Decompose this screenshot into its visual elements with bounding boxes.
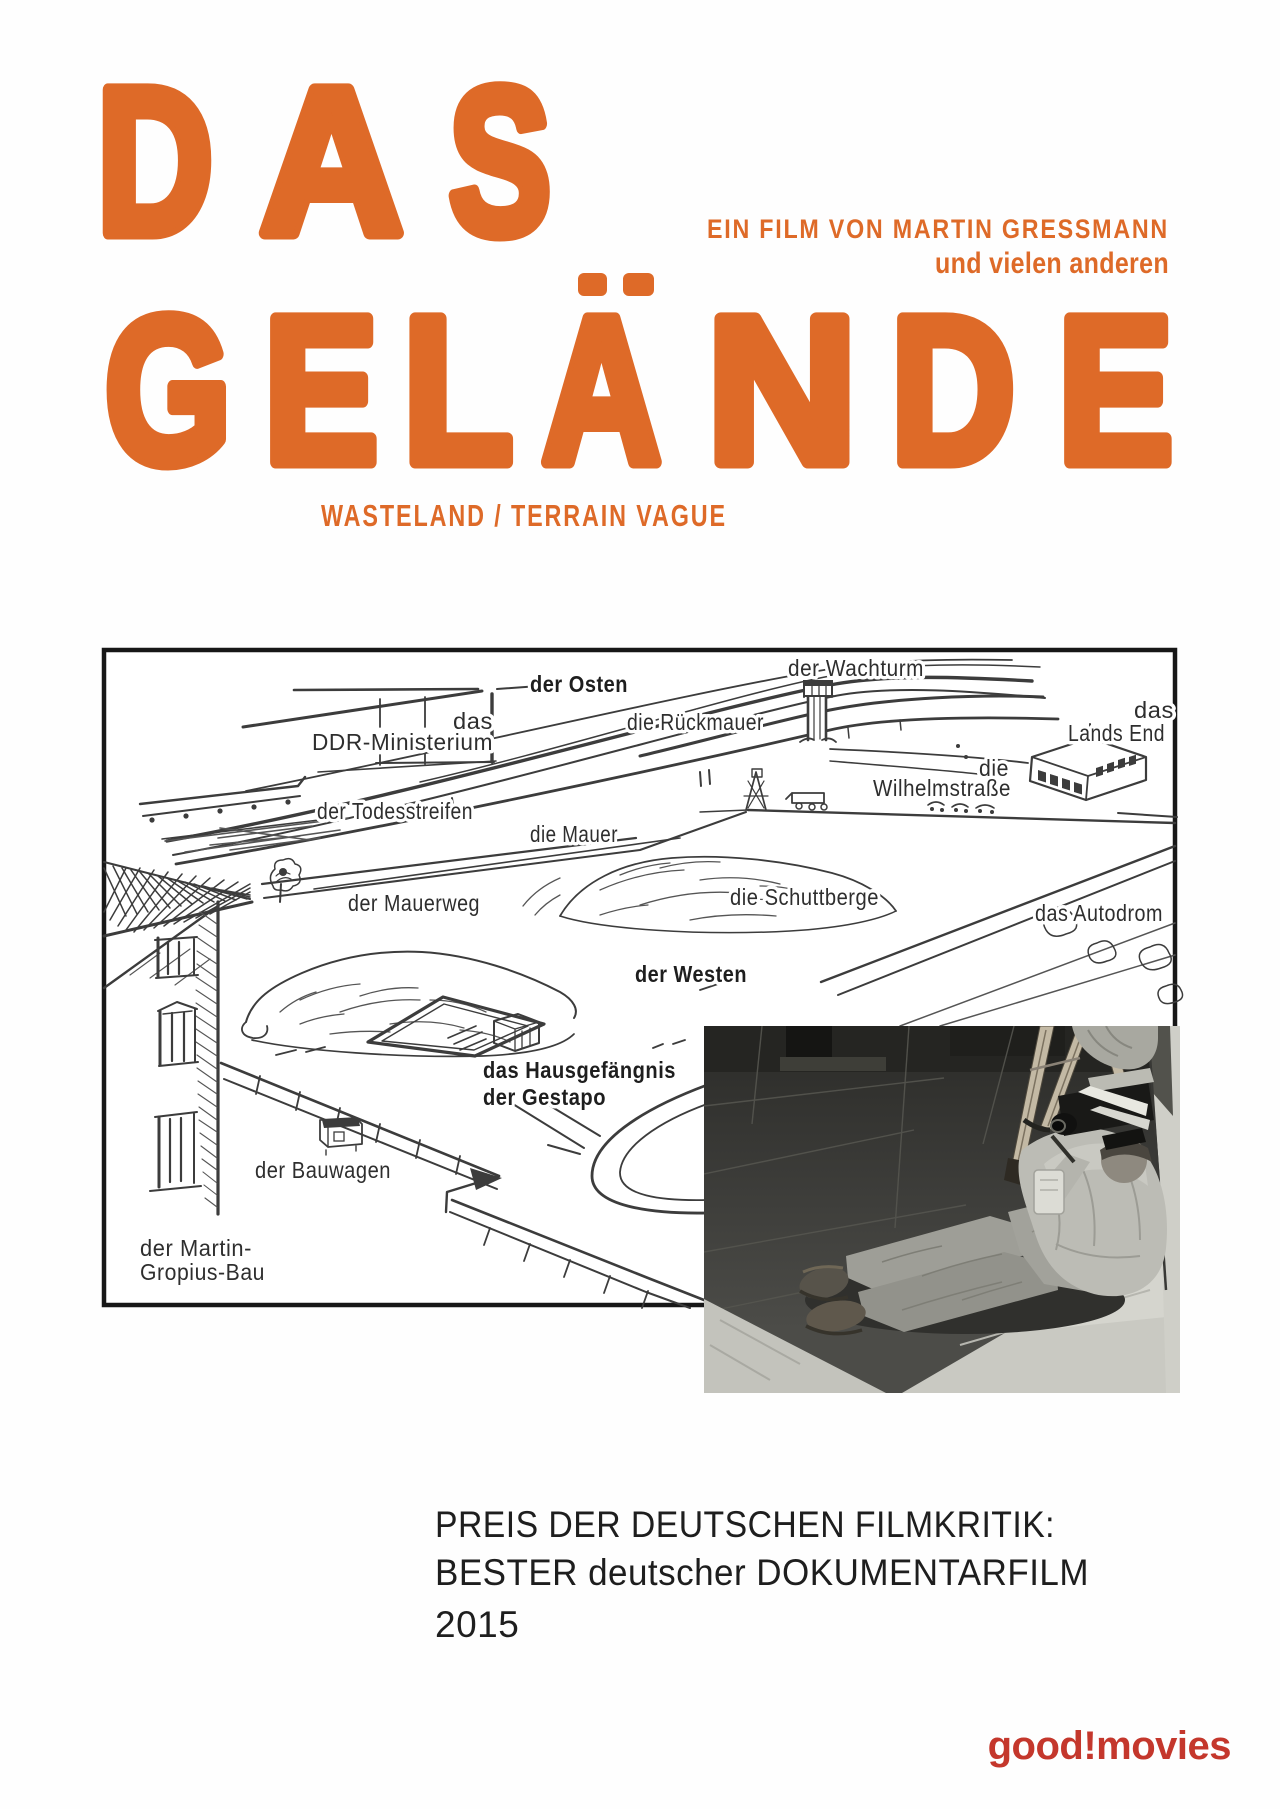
svg-text:D: D xyxy=(97,46,213,278)
svg-text:Gropius-Bau: Gropius-Bau xyxy=(140,1259,265,1285)
svg-text:der Bauwagen: der Bauwagen xyxy=(255,1157,391,1183)
svg-text:der Todesstreifen: der Todesstreifen xyxy=(317,798,473,824)
svg-text:D: D xyxy=(891,275,1015,507)
svg-text:Wilhelmstraße: Wilhelmstraße xyxy=(873,775,1011,801)
svg-text:Lands End: Lands End xyxy=(1068,720,1165,746)
svg-text:2015: 2015 xyxy=(435,1604,519,1645)
svg-text:BESTER deutscher DOKUMENTARFIL: BESTER deutscher DOKUMENTARFILM xyxy=(435,1552,1089,1593)
svg-text:G: G xyxy=(105,275,231,507)
svg-text:S: S xyxy=(449,46,551,278)
svg-text:A: A xyxy=(542,275,661,507)
svg-text:der Wachturm: der Wachturm xyxy=(788,655,924,681)
svg-text:die Schuttberge: die Schuttberge xyxy=(730,884,879,910)
svg-text:N: N xyxy=(707,275,857,507)
svg-text:DDR-Ministerium: DDR-Ministerium xyxy=(312,729,493,755)
svg-text:A: A xyxy=(260,46,403,278)
svg-text:der Martin-: der Martin- xyxy=(140,1235,252,1261)
svg-text:das Hausgefängnis: das Hausgefängnis xyxy=(483,1057,676,1083)
svg-text:E: E xyxy=(1058,275,1173,507)
svg-text:der Gestapo: der Gestapo xyxy=(483,1084,606,1110)
svg-text:WASTELAND / TERRAIN VAGUE: WASTELAND / TERRAIN VAGUE xyxy=(321,498,727,533)
svg-text:das Autodrom: das Autodrom xyxy=(1035,900,1163,926)
svg-text:die Mauer: die Mauer xyxy=(530,821,618,847)
svg-text:die Rückmauer: die Rückmauer xyxy=(627,709,764,735)
svg-text:E: E xyxy=(264,275,378,507)
svg-text:und vielen anderen: und vielen anderen xyxy=(935,247,1169,280)
svg-text:PREIS DER DEUTSCHEN FILMKRITIK: PREIS DER DEUTSCHEN FILMKRITIK: xyxy=(435,1504,1055,1545)
svg-text:good!movies: good!movies xyxy=(988,1724,1231,1768)
svg-text:L: L xyxy=(403,275,513,507)
svg-text:der Mauerweg: der Mauerweg xyxy=(348,890,480,916)
svg-text:der Westen: der Westen xyxy=(635,961,747,987)
svg-text:der Osten: der Osten xyxy=(530,671,628,697)
svg-text:EIN FILM VON MARTIN GRESSMANN: EIN FILM VON MARTIN GRESSMANN xyxy=(707,214,1169,244)
